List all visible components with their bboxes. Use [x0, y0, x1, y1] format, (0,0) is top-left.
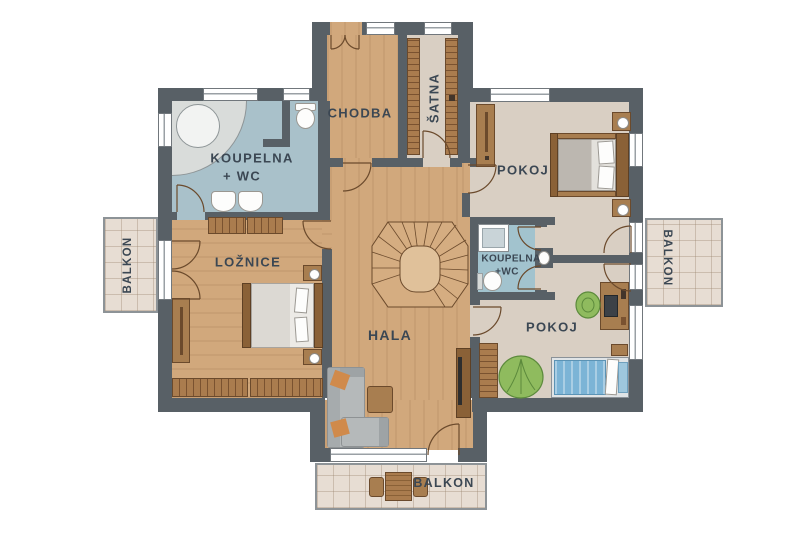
balcony-door-roombottom [629, 264, 643, 290]
window-bath-north-a [203, 88, 258, 101]
roombottom-bookshelf [479, 343, 498, 398]
tv-screen [458, 357, 462, 405]
window-bath-west [158, 113, 172, 147]
label-chodba: CHODBA [328, 106, 393, 121]
threshold-bath-main [177, 212, 205, 220]
threshold-loznice [322, 220, 332, 249]
sink-main-left [211, 191, 236, 212]
label-hala: HALA [368, 327, 412, 343]
bathtub [176, 104, 220, 148]
window-bath-north-b [283, 88, 310, 101]
roomtop-wardrobe [476, 104, 495, 167]
hallway-chodba-floor [327, 35, 398, 158]
wall-rightwing-top [460, 88, 643, 102]
label-balkon-right: BALKON [661, 230, 673, 287]
balcony-right-floor [645, 218, 723, 307]
loznice-dresser-bottom-a [172, 378, 248, 397]
loznice-wardrobe [172, 298, 190, 363]
wall-toilet-nook-h [263, 139, 290, 147]
balcony-door-roomtop [629, 222, 643, 253]
shower-tray [482, 228, 505, 248]
loznice-bed-footboard [242, 283, 251, 348]
threshold-room-bottom [470, 305, 480, 337]
balcony-door-loznice [158, 240, 172, 300]
wall-bay-south-a [310, 448, 330, 462]
wall-rooms-divider [547, 255, 629, 263]
coffee-table [367, 386, 393, 413]
window-top-chodba [366, 22, 395, 35]
threshold-satna [423, 158, 450, 167]
threshold-entry [330, 22, 362, 35]
loznice-dresser-top-a [208, 217, 246, 234]
label-pokoj-bottom: POKOJ [526, 320, 578, 335]
balcony-chair-left [369, 477, 384, 497]
satna-shelves-left [407, 38, 420, 155]
roomtop-bed-rail-bottom [550, 191, 616, 197]
roombottom-desk [600, 282, 629, 330]
loznice-pillow-a [294, 287, 309, 313]
wall-mid-a [318, 158, 343, 167]
wall-bathsmall-bottom [470, 292, 555, 300]
sink-main-right [238, 191, 263, 212]
label-koupelna-main-2: + WC [223, 169, 261, 184]
loznice-dresser-bottom-b [250, 378, 323, 397]
loznice-bed-headboard [314, 283, 323, 348]
roombottom-nightstand [611, 344, 628, 356]
wall-bay-south-b [458, 448, 487, 462]
label-koupelna-main-1: KOUPELNA [210, 151, 293, 166]
wall-bathsmall-east-a [535, 217, 547, 227]
label-koupelna-small-2: +WC [495, 267, 519, 278]
loznice-nightstand-a [303, 265, 322, 281]
label-satna: ŠATNA [427, 73, 442, 123]
threshold-room-top [462, 163, 470, 193]
roombottom-bed-blanket [554, 360, 606, 395]
label-balkon-left: BALKON [122, 237, 134, 294]
wall-mid-b [372, 158, 423, 167]
label-loznice: LOŽNICE [215, 255, 281, 270]
wall-roombottom-west-a [470, 295, 480, 305]
satna-box [449, 95, 455, 101]
window-top-satna [424, 22, 452, 35]
window-hala-south [330, 448, 427, 462]
roomtop-pillow-a [597, 140, 615, 164]
threshold-bathsmall-bottom [535, 267, 547, 290]
wall-rightwing-bottom [472, 398, 643, 412]
wall-center-left [312, 22, 327, 101]
roombottom-bed-pillow-blue [618, 362, 628, 393]
balcony-table [385, 472, 412, 501]
loznice-nightstand-b [303, 349, 322, 365]
roomtop-bed-footboard [550, 133, 558, 197]
wall-roomtop-west-b [462, 193, 470, 217]
threshold-bathsmall-top [535, 227, 547, 250]
label-koupelna-small-1: KOUPELNA [481, 254, 540, 265]
label-balkon-bottom: BALKON [413, 476, 474, 490]
wall-chodba-satna [398, 35, 407, 158]
roomtop-nightstand-b [612, 199, 631, 217]
laptop [604, 295, 618, 317]
tv-cabinet [456, 348, 471, 418]
window-roomtop-east [629, 133, 643, 167]
loznice-pillow-b [294, 317, 309, 343]
window-roombottom-east [629, 305, 643, 360]
wall-roomtop-west-a [462, 102, 470, 163]
window-roomtop-north [490, 88, 550, 102]
roomtop-bed-headboard [616, 133, 629, 197]
label-pokoj-top: POKOJ [497, 163, 549, 178]
loznice-dresser-top-b [247, 217, 283, 234]
roomtop-pillow-b [597, 165, 615, 189]
wall-leftwing-bottom [158, 398, 325, 412]
shower [478, 224, 509, 252]
roomtop-nightstand-a [612, 112, 631, 131]
toilet-main-bowl [296, 108, 315, 129]
floor-plan: KOUPELNA + WC CHODBA ŠATNA POKOJ KOUPELN… [0, 0, 800, 533]
